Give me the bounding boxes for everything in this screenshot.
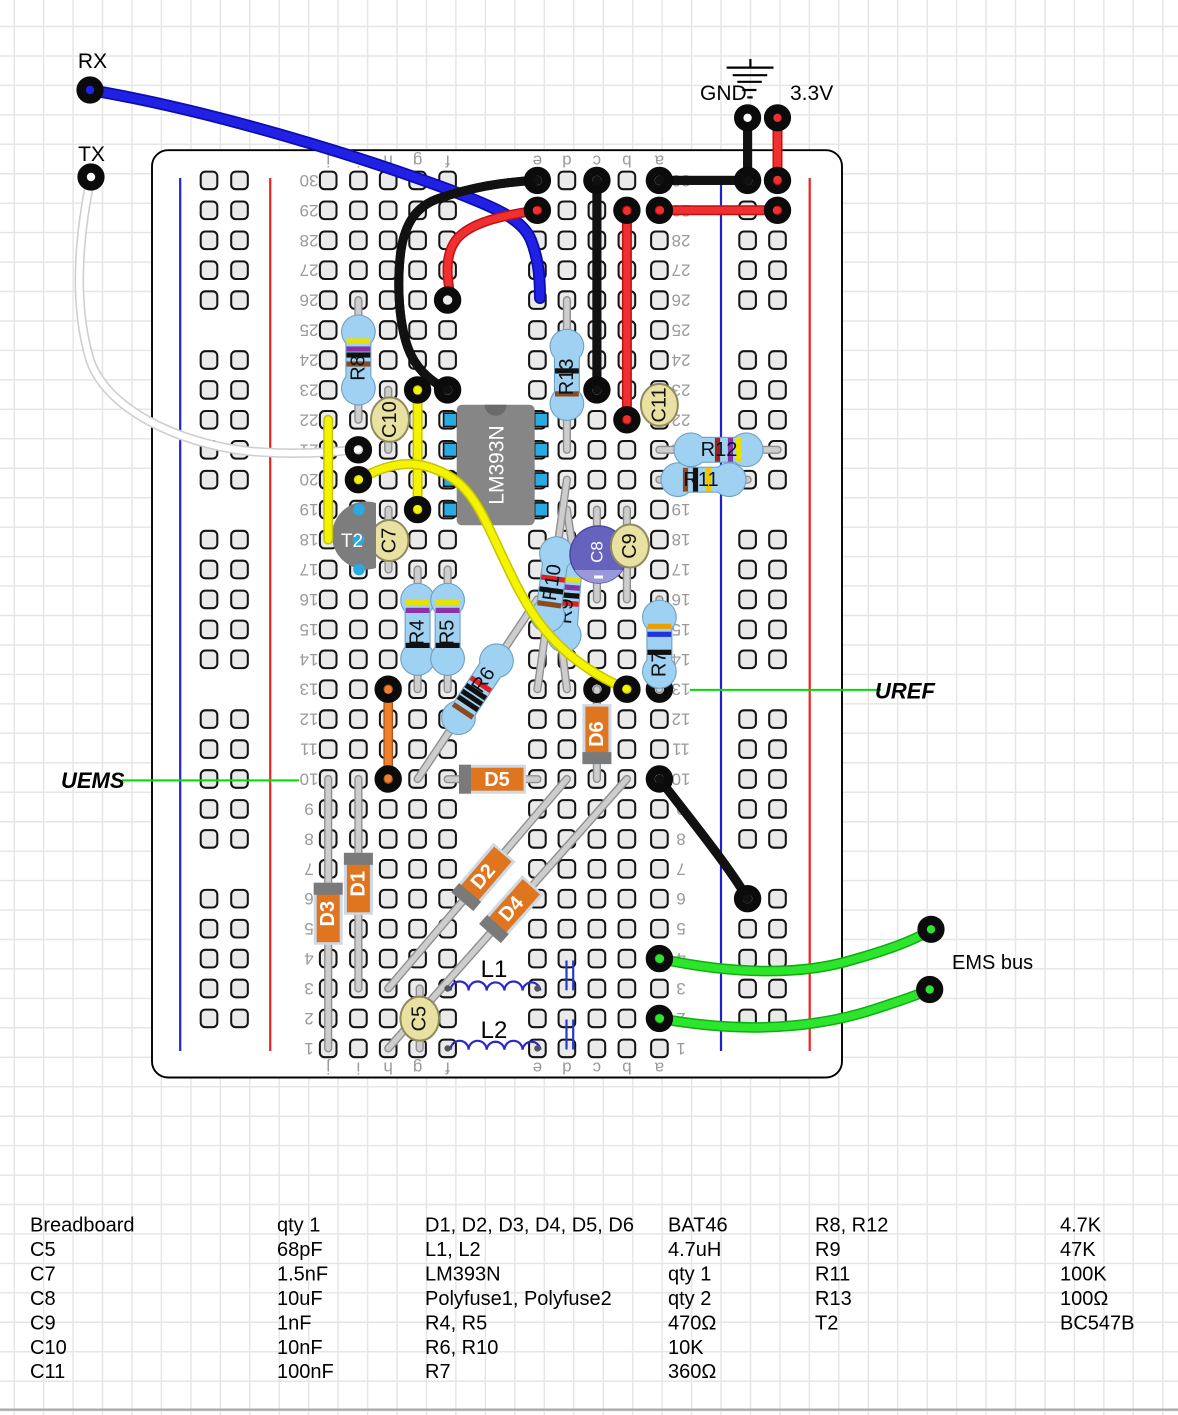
svg-text:22: 22 bbox=[300, 410, 319, 429]
svg-text:7: 7 bbox=[676, 859, 685, 878]
svg-text:24: 24 bbox=[672, 351, 691, 370]
svg-text:g: g bbox=[413, 152, 422, 171]
svg-text:R12: R12 bbox=[701, 439, 738, 461]
svg-text:D1: D1 bbox=[347, 871, 369, 897]
svg-text:100nF: 100nF bbox=[277, 1361, 334, 1383]
svg-text:18: 18 bbox=[672, 530, 691, 549]
svg-text:25: 25 bbox=[300, 321, 319, 340]
svg-text:3: 3 bbox=[676, 979, 685, 998]
svg-text:4.7uH: 4.7uH bbox=[668, 1239, 721, 1261]
svg-text:R4, R5: R4, R5 bbox=[425, 1312, 487, 1334]
svg-text:6: 6 bbox=[676, 889, 685, 908]
svg-text:UEMS: UEMS bbox=[61, 768, 125, 793]
svg-text:LM393N: LM393N bbox=[425, 1263, 501, 1285]
svg-text:68pF: 68pF bbox=[277, 1239, 323, 1261]
svg-text:L1: L1 bbox=[481, 956, 508, 983]
svg-text:C11: C11 bbox=[30, 1361, 65, 1383]
svg-text:C5: C5 bbox=[30, 1239, 56, 1261]
svg-text:17: 17 bbox=[300, 560, 319, 579]
svg-text:30: 30 bbox=[300, 171, 319, 190]
svg-text:D6: D6 bbox=[586, 721, 608, 747]
svg-text:10K: 10K bbox=[668, 1337, 704, 1359]
svg-text:C10: C10 bbox=[30, 1337, 67, 1359]
svg-text:47K: 47K bbox=[1060, 1239, 1096, 1261]
svg-text:17: 17 bbox=[672, 560, 691, 579]
svg-text:BC547B: BC547B bbox=[1060, 1312, 1135, 1334]
svg-text:D3: D3 bbox=[317, 901, 339, 927]
svg-text:3: 3 bbox=[304, 979, 313, 998]
svg-text:e: e bbox=[533, 1059, 542, 1078]
svg-text:j: j bbox=[326, 1059, 331, 1078]
svg-text:GND: GND bbox=[700, 82, 747, 105]
svg-text:C5: C5 bbox=[409, 1006, 431, 1032]
svg-text:R8, R12: R8, R12 bbox=[815, 1215, 888, 1237]
svg-text:R9: R9 bbox=[815, 1239, 841, 1261]
svg-text:UREF: UREF bbox=[875, 679, 935, 704]
svg-text:C8: C8 bbox=[588, 541, 607, 563]
svg-text:16: 16 bbox=[300, 590, 319, 609]
svg-text:EMS bus: EMS bus bbox=[952, 952, 1033, 974]
svg-text:R7: R7 bbox=[648, 652, 670, 678]
svg-text:100Ω: 100Ω bbox=[1060, 1288, 1108, 1310]
svg-text:1.5nF: 1.5nF bbox=[277, 1263, 328, 1285]
svg-text:Polyfuse1, Polyfuse2: Polyfuse1, Polyfuse2 bbox=[425, 1288, 612, 1310]
svg-text:7: 7 bbox=[304, 859, 313, 878]
svg-text:11: 11 bbox=[672, 740, 690, 759]
svg-text:R7: R7 bbox=[425, 1361, 451, 1383]
svg-text:h: h bbox=[383, 1059, 392, 1078]
svg-text:L2: L2 bbox=[481, 1017, 508, 1044]
svg-text:10: 10 bbox=[672, 770, 691, 789]
svg-text:26: 26 bbox=[300, 291, 319, 310]
svg-text:19: 19 bbox=[300, 500, 319, 519]
svg-text:29: 29 bbox=[300, 201, 319, 220]
svg-text:d: d bbox=[562, 1059, 571, 1078]
svg-text:28: 28 bbox=[672, 231, 691, 250]
svg-text:27: 27 bbox=[300, 261, 319, 280]
svg-text:R5: R5 bbox=[437, 620, 459, 646]
svg-text:b: b bbox=[622, 152, 631, 171]
svg-text:D1, D2, D3, D4, D5, D6: D1, D2, D3, D4, D5, D6 bbox=[425, 1215, 634, 1237]
svg-text:C10: C10 bbox=[379, 401, 401, 438]
svg-text:D5: D5 bbox=[484, 769, 510, 791]
svg-text:12: 12 bbox=[300, 710, 319, 729]
svg-text:d: d bbox=[562, 152, 571, 171]
svg-text:g: g bbox=[413, 1059, 422, 1078]
svg-text:qty 1: qty 1 bbox=[277, 1215, 320, 1237]
svg-text:5: 5 bbox=[676, 919, 685, 938]
svg-text:T2: T2 bbox=[341, 531, 363, 552]
svg-text:27: 27 bbox=[672, 261, 691, 280]
svg-text:LM393N: LM393N bbox=[486, 425, 509, 504]
svg-text:8: 8 bbox=[676, 829, 685, 848]
svg-text:360Ω: 360Ω bbox=[668, 1361, 716, 1383]
svg-text:c: c bbox=[592, 1059, 601, 1078]
svg-text:1: 1 bbox=[676, 1039, 685, 1058]
svg-text:1nF: 1nF bbox=[277, 1312, 311, 1334]
svg-text:C9: C9 bbox=[619, 533, 641, 559]
svg-text:qty 2: qty 2 bbox=[668, 1288, 711, 1310]
svg-text:C11: C11 bbox=[648, 387, 670, 422]
svg-text:R11: R11 bbox=[815, 1263, 850, 1285]
svg-text:2: 2 bbox=[304, 1009, 313, 1028]
svg-text:f: f bbox=[445, 1059, 450, 1078]
svg-text:10uF: 10uF bbox=[277, 1288, 323, 1310]
svg-text:25: 25 bbox=[672, 321, 691, 340]
svg-text:4.7K: 4.7K bbox=[1060, 1215, 1102, 1237]
svg-text:5: 5 bbox=[304, 919, 313, 938]
svg-text:C8: C8 bbox=[30, 1288, 56, 1310]
svg-text:T2: T2 bbox=[815, 1312, 838, 1334]
svg-text:b: b bbox=[622, 1059, 631, 1078]
svg-text:C9: C9 bbox=[30, 1312, 56, 1334]
svg-text:13: 13 bbox=[672, 680, 691, 699]
svg-text:a: a bbox=[654, 1059, 664, 1078]
svg-text:f: f bbox=[445, 152, 450, 171]
svg-text:i: i bbox=[357, 1059, 361, 1078]
svg-text:R11: R11 bbox=[683, 469, 718, 491]
svg-text:10nF: 10nF bbox=[277, 1337, 323, 1359]
svg-text:R13: R13 bbox=[556, 359, 578, 396]
svg-text:R8: R8 bbox=[347, 355, 369, 381]
svg-text:R4: R4 bbox=[407, 620, 429, 646]
svg-text:Breadboard: Breadboard bbox=[30, 1215, 135, 1237]
svg-text:20: 20 bbox=[300, 470, 319, 489]
svg-text:8: 8 bbox=[304, 829, 313, 848]
svg-text:14: 14 bbox=[300, 650, 319, 669]
svg-text:18: 18 bbox=[300, 530, 319, 549]
svg-text:1: 1 bbox=[304, 1039, 313, 1058]
svg-text:26: 26 bbox=[672, 291, 691, 310]
svg-text:23: 23 bbox=[300, 380, 319, 399]
svg-text:28: 28 bbox=[300, 231, 319, 250]
svg-text:6: 6 bbox=[304, 889, 313, 908]
svg-text:R6, R10: R6, R10 bbox=[425, 1337, 498, 1359]
svg-text:100K: 100K bbox=[1060, 1263, 1107, 1285]
svg-text:TX: TX bbox=[78, 143, 105, 166]
svg-text:15: 15 bbox=[300, 620, 319, 639]
svg-text:24: 24 bbox=[300, 351, 319, 370]
svg-text:qty 1: qty 1 bbox=[668, 1263, 711, 1285]
svg-text:19: 19 bbox=[672, 500, 691, 519]
svg-text:C7: C7 bbox=[30, 1263, 56, 1285]
svg-text:13: 13 bbox=[300, 680, 319, 699]
svg-text:R13: R13 bbox=[815, 1288, 852, 1310]
svg-text:BAT46: BAT46 bbox=[668, 1215, 728, 1237]
svg-text:RX: RX bbox=[78, 50, 107, 73]
svg-text:3.3V: 3.3V bbox=[790, 82, 833, 105]
svg-text:C7: C7 bbox=[379, 528, 401, 554]
svg-text:16: 16 bbox=[672, 590, 691, 609]
svg-text:9: 9 bbox=[304, 799, 313, 818]
svg-text:11: 11 bbox=[300, 740, 318, 759]
svg-text:10: 10 bbox=[300, 770, 319, 789]
svg-text:L1, L2: L1, L2 bbox=[425, 1239, 481, 1261]
svg-text:470Ω: 470Ω bbox=[668, 1312, 716, 1334]
svg-text:4: 4 bbox=[304, 949, 313, 968]
svg-text:12: 12 bbox=[672, 710, 691, 729]
